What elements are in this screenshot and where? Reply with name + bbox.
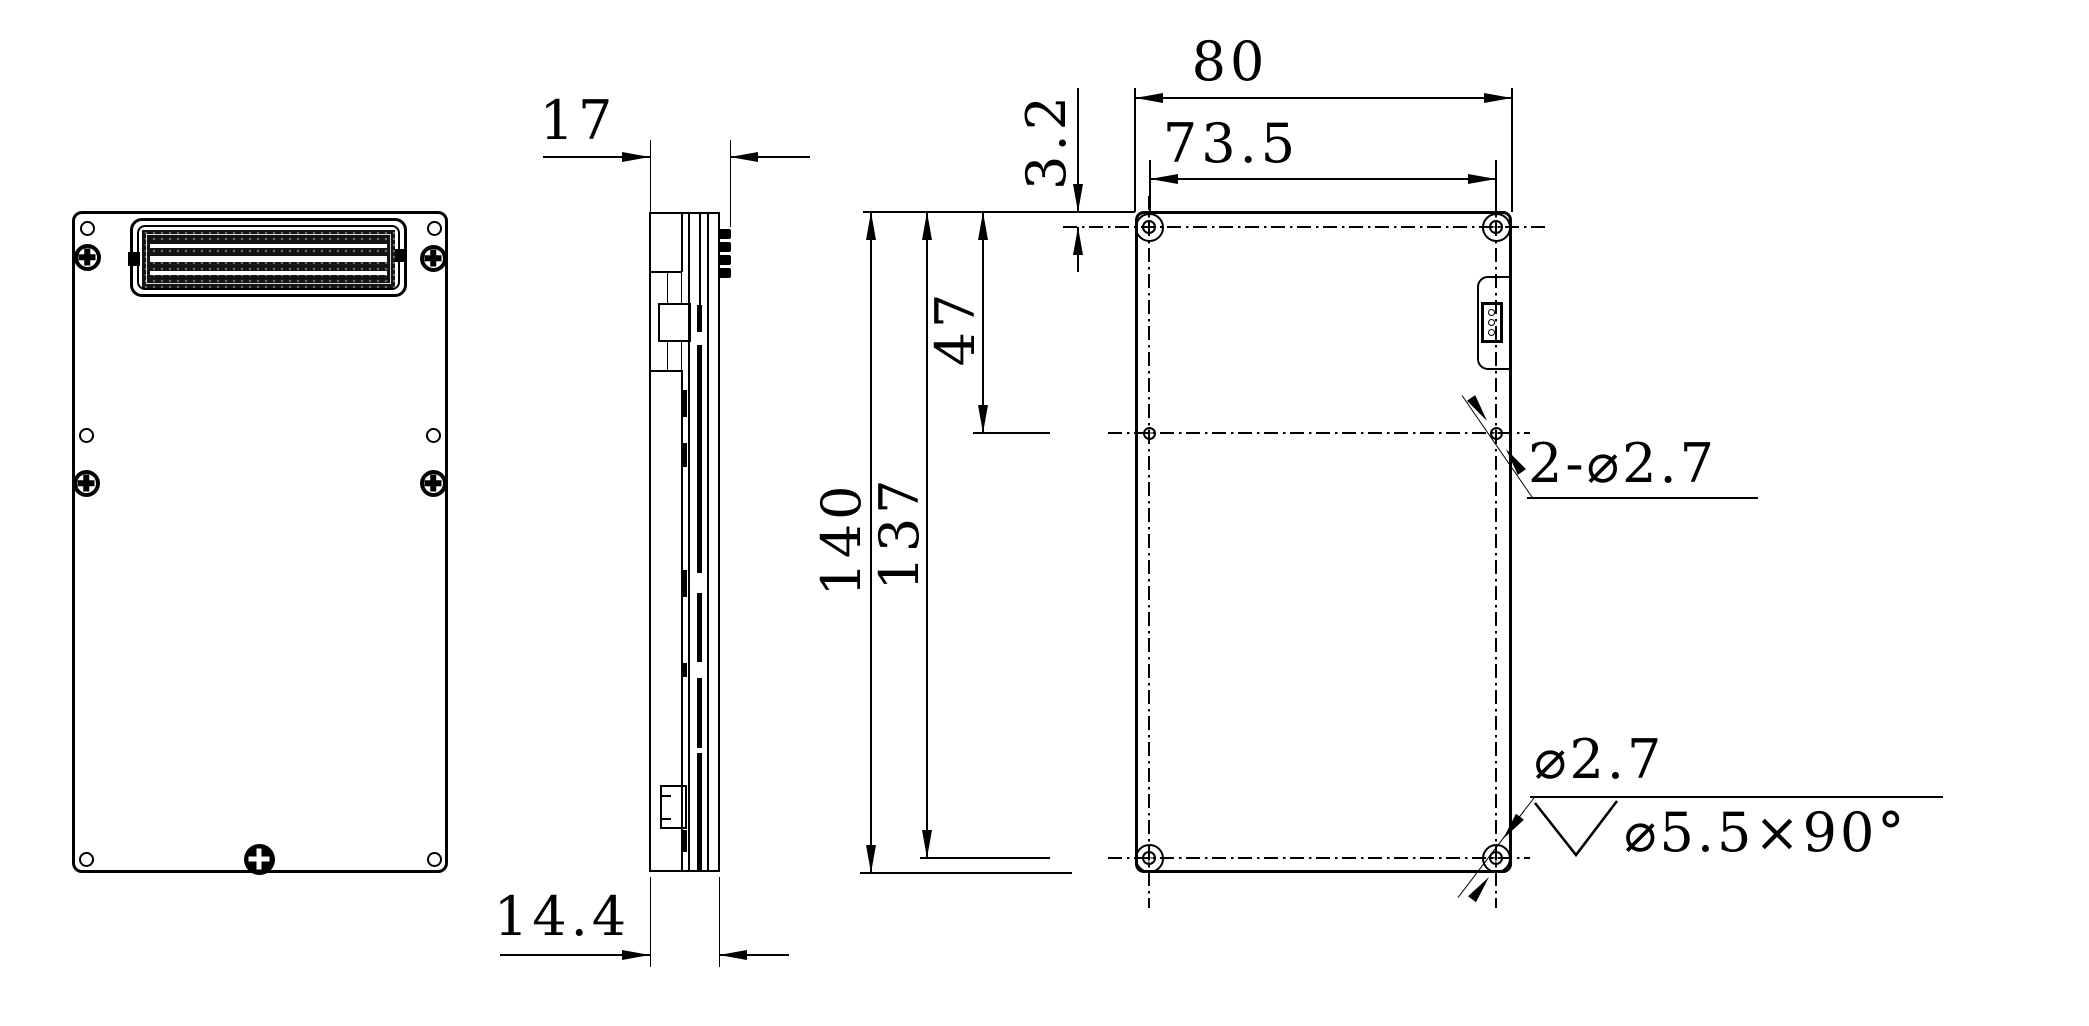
callout-hole-diameter: ⌀2.7: [1534, 733, 1664, 787]
dim-text-width: 80: [1192, 35, 1269, 89]
callout-countersink: ⌀5.5×90°: [1624, 806, 1907, 860]
dim-arrow: [1484, 93, 1512, 103]
dim-text-height: 140: [815, 481, 869, 596]
countersink-icon: [1531, 799, 1621, 859]
countersunk-hole: [1135, 844, 1164, 873]
extension-line: [920, 857, 1050, 859]
extension-line: [860, 872, 1072, 874]
extension-line: [1511, 88, 1513, 212]
extension-line: [863, 211, 1135, 213]
dim-text-mid-hole-offset: 47: [929, 290, 983, 367]
dim-arrow: [978, 212, 988, 240]
countersunk-hole: [1482, 213, 1511, 242]
extension-line: [1149, 160, 1151, 212]
dim-arrow: [866, 845, 876, 873]
dim-text-hole-span-width: 73.5: [1163, 117, 1299, 171]
connector-pin: [1488, 309, 1495, 316]
engineering-drawing-canvas: 17 14.4: [0, 0, 2089, 1026]
side-hole: [1143, 427, 1156, 440]
countersunk-hole: [1135, 213, 1164, 242]
dimension-line: [1150, 178, 1496, 180]
rear-view-outline: [1135, 211, 1512, 873]
dimension-line: [1135, 97, 1512, 99]
dim-arrow: [978, 405, 988, 433]
rear-view: 80 73.5 3.2 47 137 140 2-⌀2.7: [0, 0, 2089, 1026]
dim-arrow: [1468, 174, 1496, 184]
extension-line: [1134, 88, 1136, 212]
dim-text-hole-span-height: 137: [873, 475, 927, 590]
extension-line: [1495, 160, 1497, 212]
leader-underline: [1530, 796, 1943, 798]
connector-pin: [1488, 319, 1495, 326]
dim-arrow: [1150, 174, 1178, 184]
dim-arrow: [866, 212, 876, 240]
dim-arrow: [922, 212, 932, 240]
callout-side-holes: 2-⌀2.7: [1528, 437, 1717, 491]
dim-arrow: [922, 830, 932, 858]
dim-arrow: [1073, 227, 1083, 255]
connector-pin: [1488, 329, 1495, 336]
dim-text-top-hole-offset: 3.2: [1020, 92, 1074, 190]
leader-underline: [1527, 497, 1758, 499]
dim-arrow: [1135, 93, 1163, 103]
